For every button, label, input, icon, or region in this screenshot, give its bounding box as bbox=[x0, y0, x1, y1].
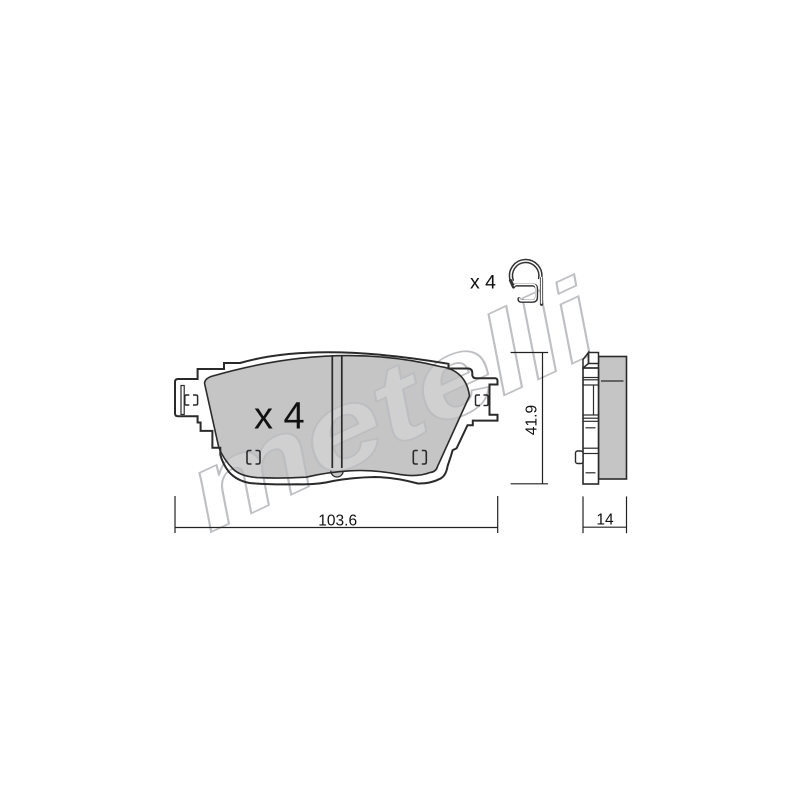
svg-text:x 4: x 4 bbox=[254, 396, 305, 438]
svg-text:x 4: x 4 bbox=[470, 272, 496, 294]
svg-text:103.6: 103.6 bbox=[318, 513, 357, 530]
svg-text:41.9: 41.9 bbox=[524, 405, 541, 435]
svg-text:14: 14 bbox=[596, 511, 614, 528]
